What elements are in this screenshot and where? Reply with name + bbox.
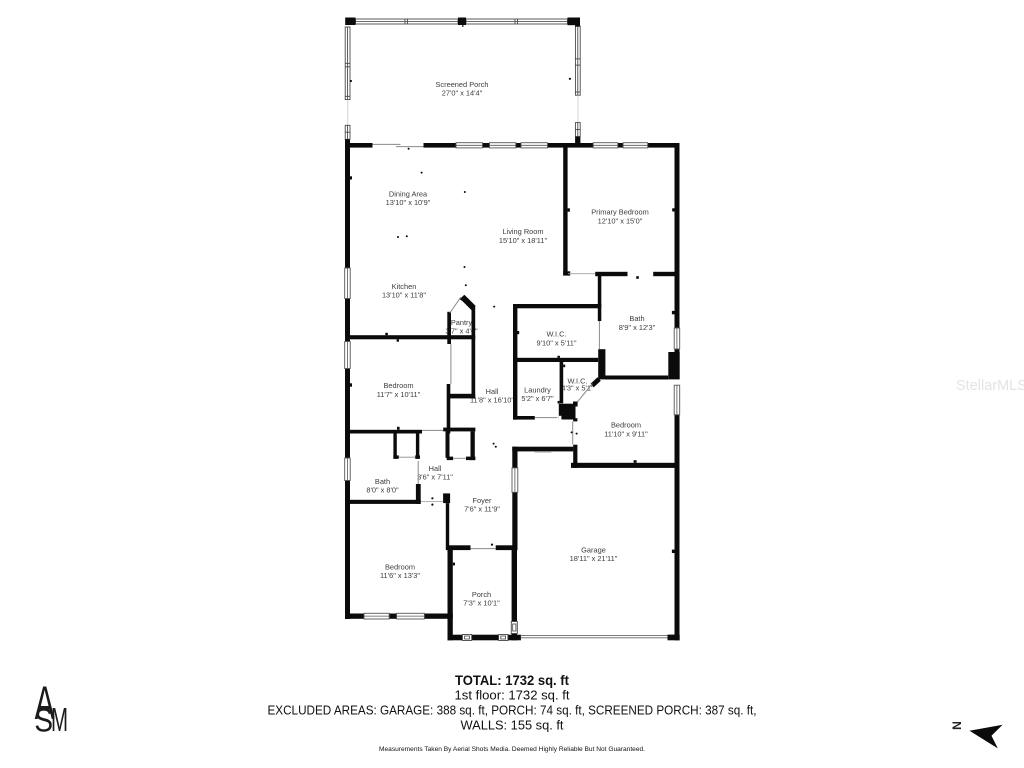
svg-text:WALLS: 155 sq. ft: WALLS: 155 sq. ft bbox=[461, 718, 564, 733]
svg-text:StellarMLS: StellarMLS bbox=[956, 378, 1024, 394]
svg-text:8'0" x 8'0": 8'0" x 8'0" bbox=[366, 485, 399, 494]
svg-text:Bedroom: Bedroom bbox=[384, 381, 414, 390]
svg-text:9'10" x 5'11": 9'10" x 5'11" bbox=[537, 338, 577, 347]
svg-text:13'10" x 11'8": 13'10" x 11'8" bbox=[382, 290, 426, 299]
svg-text:11'7" x 10'11": 11'7" x 10'11" bbox=[377, 390, 421, 399]
svg-text:11'8" x 16'10": 11'8" x 16'10" bbox=[470, 395, 514, 404]
svg-text:M: M bbox=[51, 701, 68, 738]
svg-text:11'10" x 9'11": 11'10" x 9'11" bbox=[604, 429, 648, 438]
svg-text:N: N bbox=[950, 721, 964, 730]
svg-text:Primary Bedroom: Primary Bedroom bbox=[591, 207, 649, 216]
svg-text:7'6" x 11'9": 7'6" x 11'9" bbox=[464, 504, 500, 513]
svg-text:TOTAL: 1732 sq. ft: TOTAL: 1732 sq. ft bbox=[455, 673, 570, 688]
svg-text:Bedroom: Bedroom bbox=[611, 420, 641, 429]
svg-text:W.I.C.: W.I.C. bbox=[546, 329, 566, 338]
svg-text:EXCLUDED AREAS: GARAGE: 388 sq: EXCLUDED AREAS: GARAGE: 388 sq. ft, PORC… bbox=[268, 703, 757, 718]
svg-text:3'6" x 7'11": 3'6" x 7'11" bbox=[417, 472, 453, 481]
svg-text:5'2" x 6'7": 5'2" x 6'7" bbox=[521, 394, 554, 403]
svg-text:15'10" x 18'11": 15'10" x 18'11" bbox=[499, 236, 548, 245]
svg-text:1st floor: 1732 sq. ft: 1st floor: 1732 sq. ft bbox=[455, 688, 570, 703]
svg-text:27'0" x 14'4": 27'0" x 14'4" bbox=[442, 88, 483, 97]
svg-text:13'10" x 10'9": 13'10" x 10'9" bbox=[386, 198, 431, 207]
svg-text:11'6" x 13'3": 11'6" x 13'3" bbox=[380, 571, 420, 580]
svg-text:Bath: Bath bbox=[629, 314, 644, 323]
svg-text:Measurements Taken By Aerial S: Measurements Taken By Aerial Shots Media… bbox=[379, 746, 645, 753]
svg-text:12'10" x 15'0": 12'10" x 15'0" bbox=[598, 216, 643, 225]
svg-text:Living Room: Living Room bbox=[502, 227, 543, 236]
svg-text:8'9" x 12'3": 8'9" x 12'3" bbox=[619, 323, 656, 332]
svg-text:18'11" x 21'11": 18'11" x 21'11" bbox=[570, 554, 618, 563]
svg-text:S: S bbox=[34, 702, 53, 739]
svg-text:7'3" x 10'1": 7'3" x 10'1" bbox=[463, 598, 500, 607]
